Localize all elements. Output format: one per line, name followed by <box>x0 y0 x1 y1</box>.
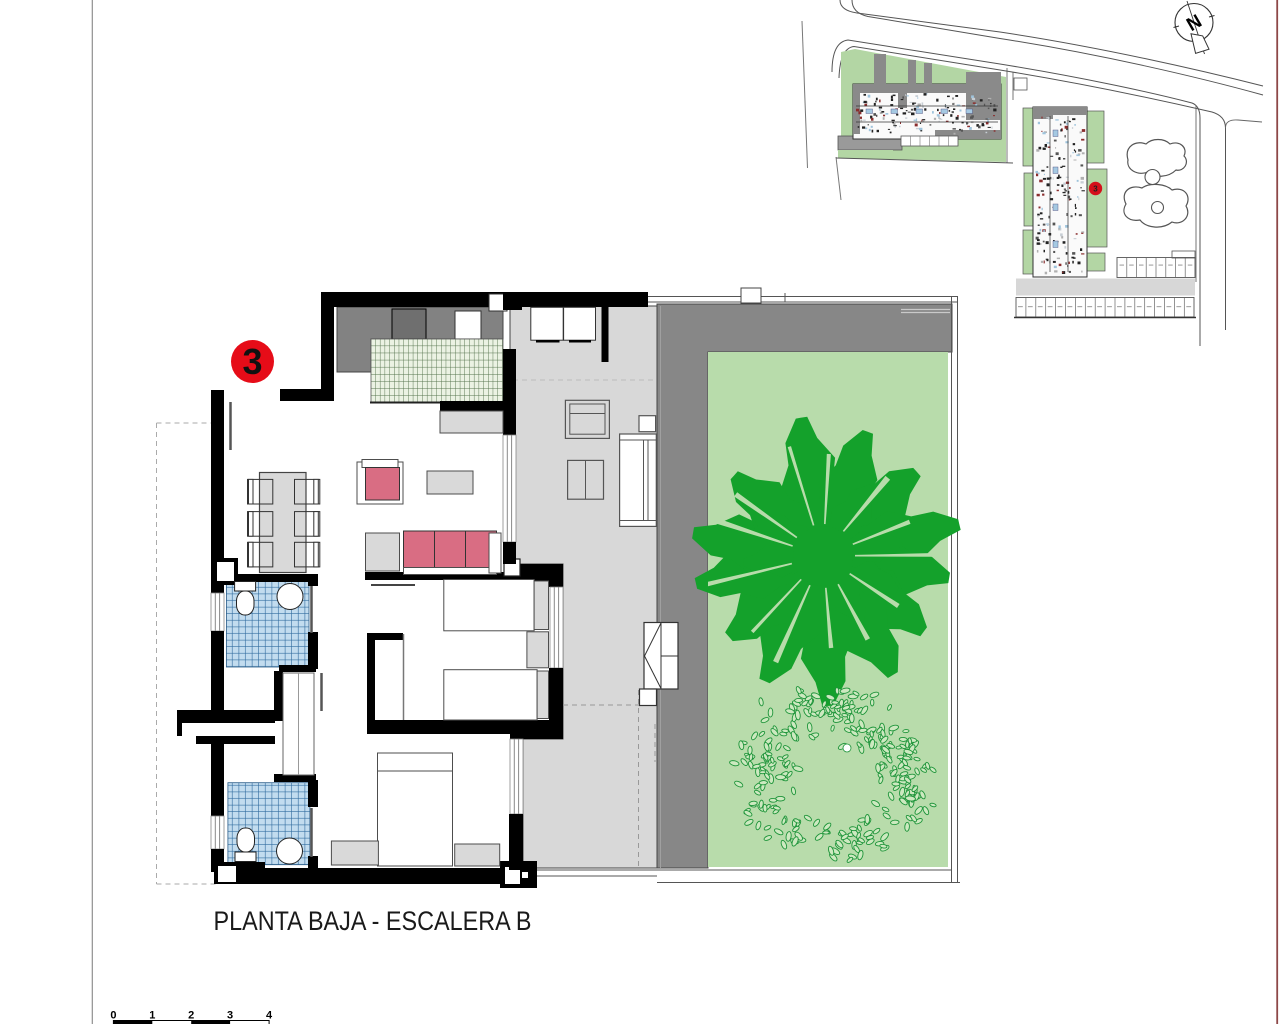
svg-text:0: 0 <box>110 1010 116 1022</box>
svg-text:4: 4 <box>266 1010 273 1022</box>
svg-text:2: 2 <box>188 1010 194 1022</box>
svg-text:3: 3 <box>242 341 262 382</box>
svg-text:3: 3 <box>227 1010 233 1022</box>
svg-text:1: 1 <box>149 1010 155 1022</box>
svg-text:3: 3 <box>1093 185 1098 194</box>
svg-text:PLANTA BAJA - ESCALERA B: PLANTA BAJA - ESCALERA B <box>214 906 532 936</box>
